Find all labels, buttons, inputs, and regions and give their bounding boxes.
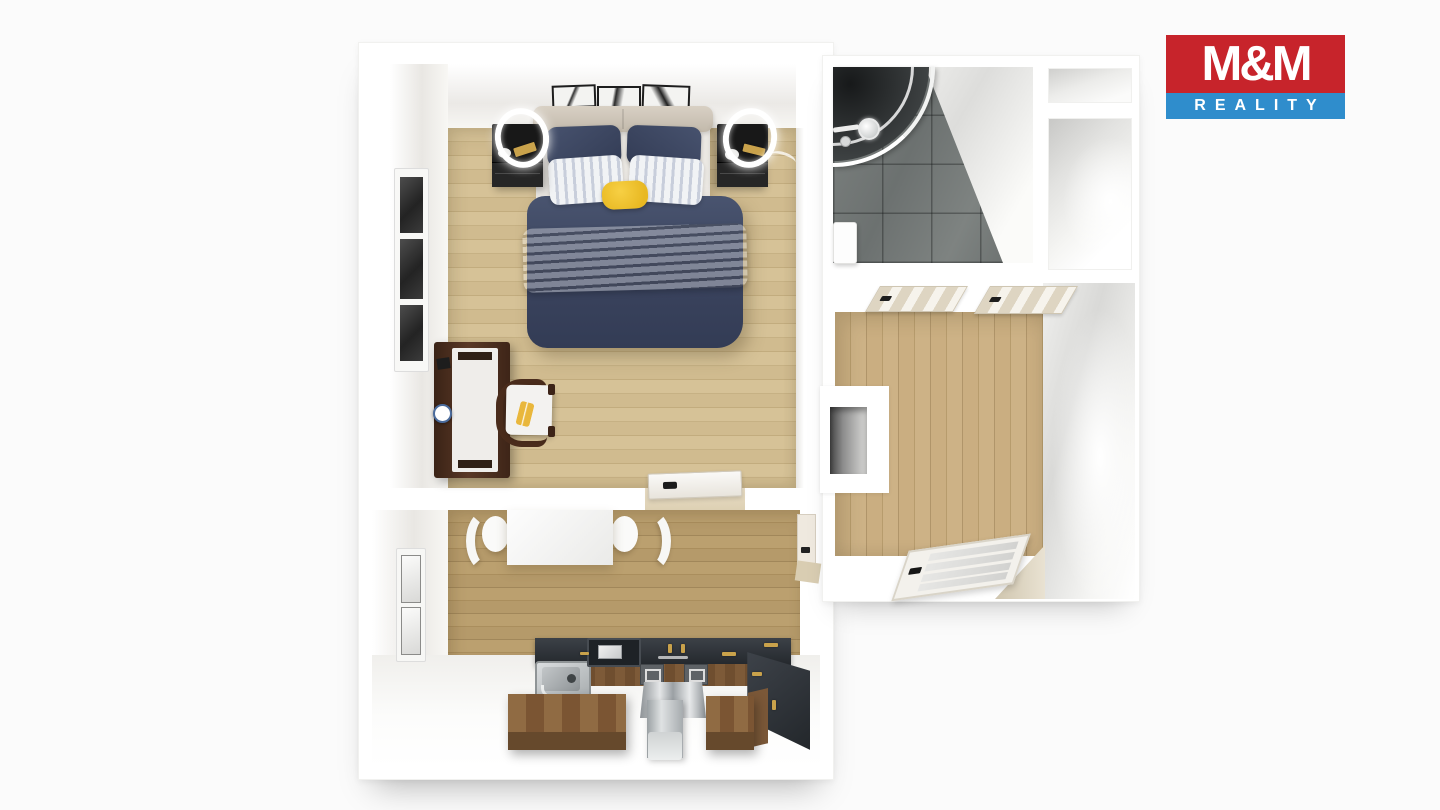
headboard-divider — [622, 109, 624, 129]
hallway-door-bathroom — [865, 286, 968, 312]
kitchen-door-sill — [795, 560, 822, 583]
sink-drain — [567, 674, 576, 683]
window-pane — [401, 555, 421, 603]
dining-table — [507, 510, 613, 565]
window-pane — [400, 177, 423, 233]
niche-recess — [830, 407, 867, 474]
brass-handle — [668, 644, 672, 653]
chair-leg — [548, 426, 555, 437]
logo-mm: M&M — [1166, 35, 1345, 93]
brass-handle — [764, 643, 778, 647]
floor-plan-render: M&M REALITY — [0, 0, 1440, 810]
door-handle — [908, 567, 922, 575]
desk-end-cap — [458, 352, 492, 360]
closet-small — [1048, 68, 1132, 103]
stove-panel-left — [640, 664, 664, 685]
door-handle — [801, 547, 810, 553]
brass-handle — [722, 652, 736, 656]
island-left — [508, 694, 626, 750]
door-handle — [879, 296, 892, 301]
bedroom-window — [394, 168, 429, 372]
cooktop-pot — [598, 645, 622, 659]
stove-dots — [658, 656, 688, 659]
fridge-bottom-cap — [648, 732, 682, 760]
brass-handle — [772, 700, 776, 710]
desk-clock — [433, 404, 452, 423]
hallway-right-wall-face — [1043, 283, 1135, 599]
island-front — [508, 732, 626, 750]
brass-handle — [580, 652, 589, 655]
door-handle — [663, 482, 677, 489]
door-handle — [989, 297, 1002, 302]
chair-leg — [548, 384, 555, 395]
island-front — [706, 732, 754, 750]
closet-tall — [1048, 118, 1132, 270]
brass-handle — [752, 672, 762, 676]
panel-window — [645, 669, 661, 682]
bath-mat — [833, 222, 857, 264]
brass-handle — [681, 644, 685, 653]
desk-item-box — [436, 357, 450, 370]
window-pane — [400, 305, 423, 361]
island-top — [508, 694, 626, 732]
island-top — [706, 696, 754, 732]
desk-pad — [452, 348, 498, 472]
cooktop — [587, 638, 641, 667]
kitchen-window — [396, 548, 426, 662]
window-pane — [400, 239, 423, 299]
stove-panel-right — [684, 664, 708, 685]
drawer-line — [720, 173, 765, 174]
shower-head — [858, 118, 880, 140]
drawer-line — [495, 173, 540, 174]
panel-window — [689, 669, 705, 682]
island-right — [706, 696, 754, 750]
pillow-yellow — [601, 180, 648, 210]
hallway-door-room — [974, 286, 1078, 314]
logo-reality: REALITY — [1166, 93, 1345, 119]
dining-chair-left-seat — [482, 516, 509, 552]
bedroom-door-panel — [648, 470, 743, 499]
desk-end-cap — [458, 460, 492, 468]
bedroom-right-wall-face — [796, 128, 804, 488]
dining-chair-right-seat — [611, 516, 638, 552]
window-pane — [401, 607, 421, 655]
kitchen-door-panel — [797, 514, 816, 564]
bed-blanket — [522, 223, 748, 293]
shower-knob — [840, 136, 851, 147]
